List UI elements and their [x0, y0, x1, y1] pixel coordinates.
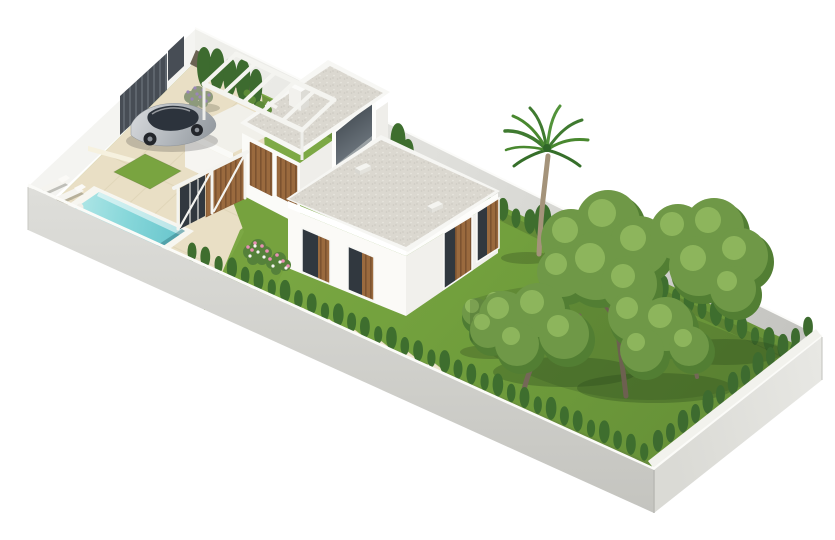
palm-crown	[543, 144, 551, 152]
property-3d-render	[0, 0, 835, 540]
render-canvas	[0, 0, 835, 540]
